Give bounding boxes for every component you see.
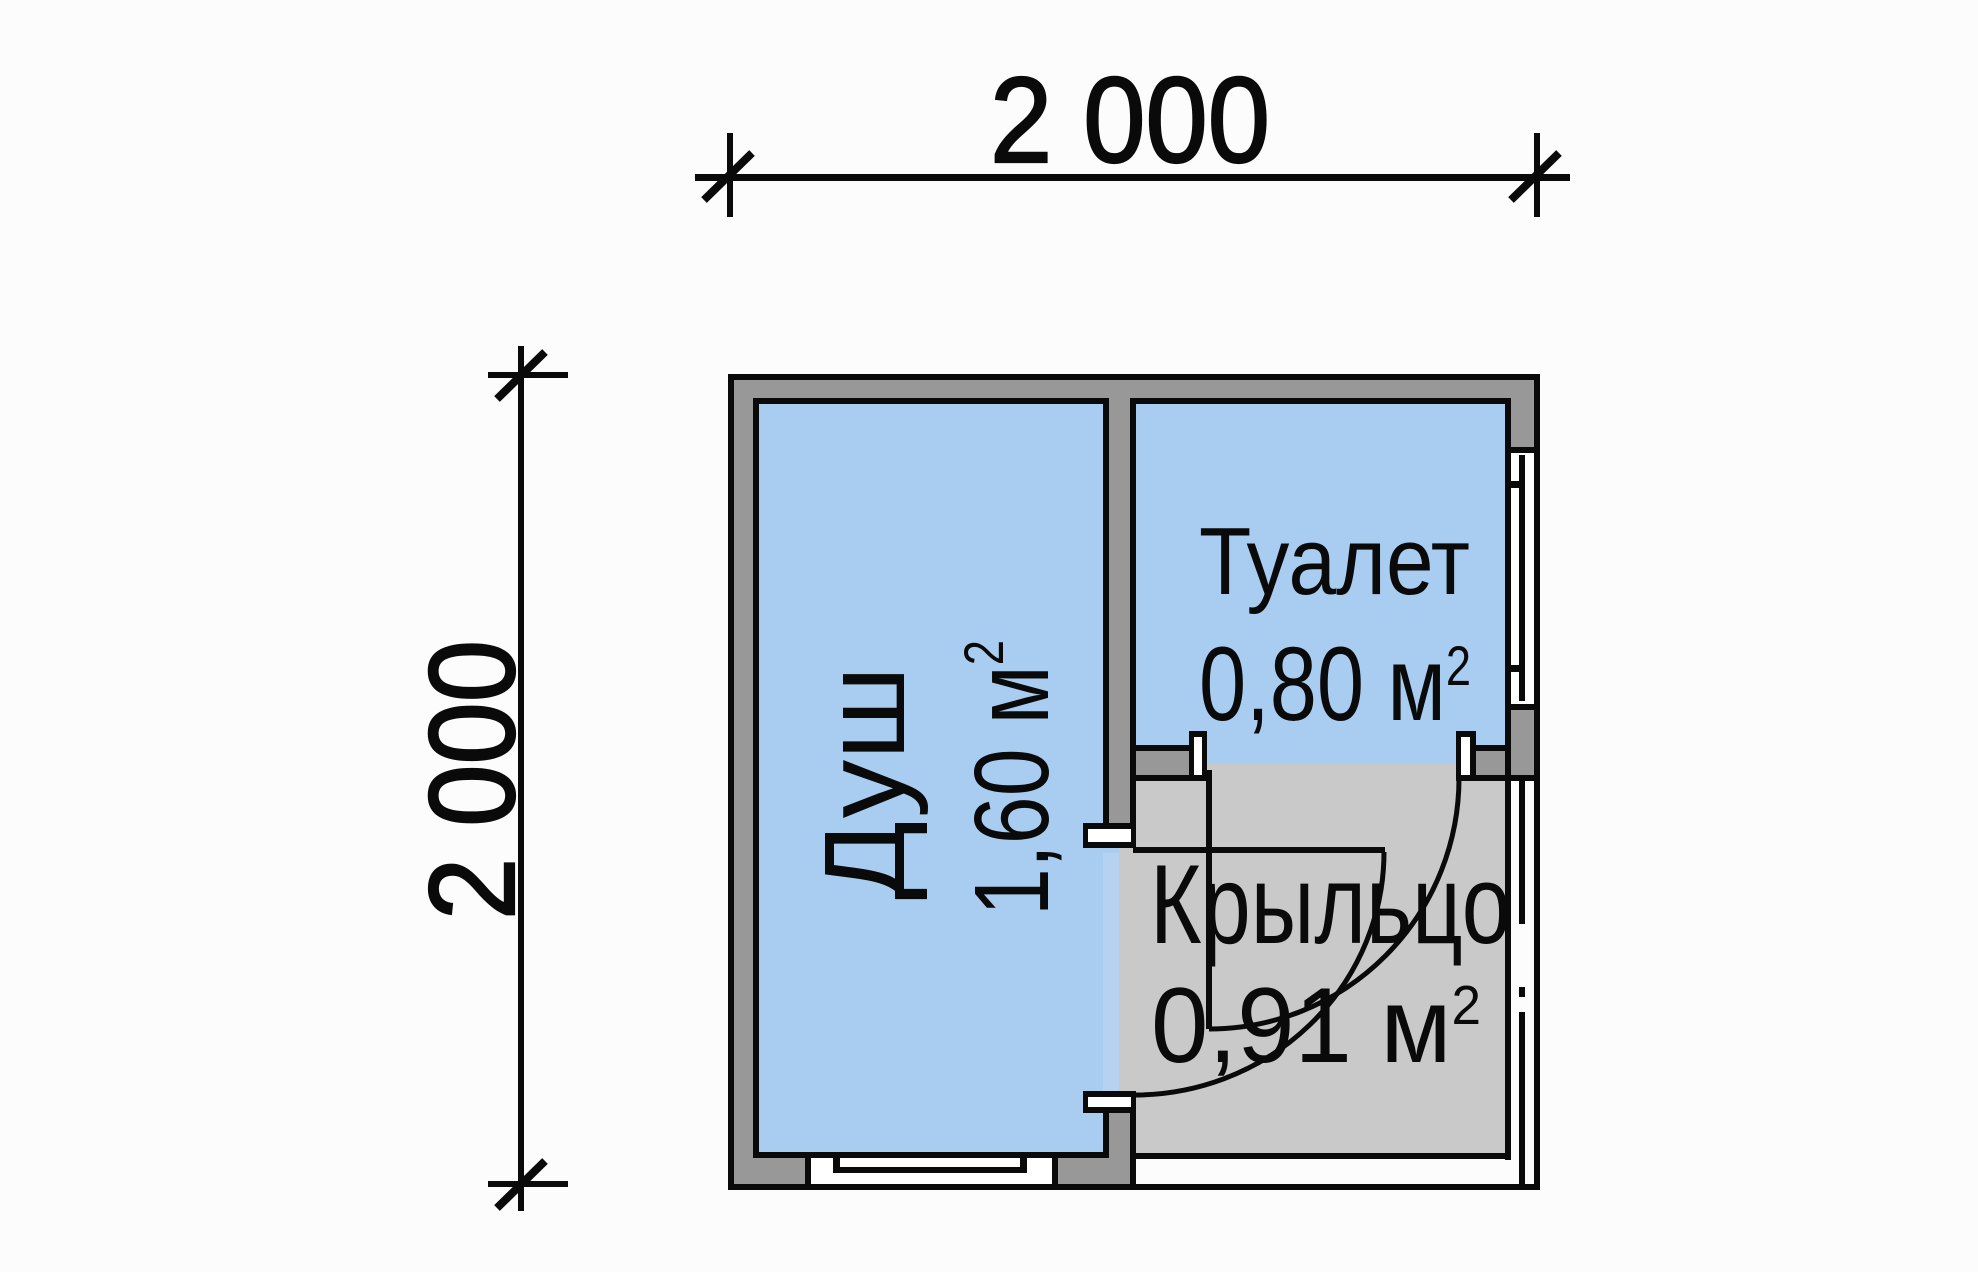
svg-text:1,60 м2: 1,60 м2 — [952, 640, 1071, 916]
svg-text:0,91 м2: 0,91 м2 — [1151, 965, 1481, 1085]
svg-text:2 000: 2 000 — [990, 52, 1270, 188]
svg-text:Туалет: Туалет — [1199, 508, 1470, 615]
svg-text:Душ: Душ — [801, 666, 929, 900]
svg-text:Крыльцо: Крыльцо — [1150, 842, 1511, 967]
svg-text:0,80 м2: 0,80 м2 — [1199, 626, 1471, 743]
svg-text:2 000: 2 000 — [404, 640, 540, 920]
